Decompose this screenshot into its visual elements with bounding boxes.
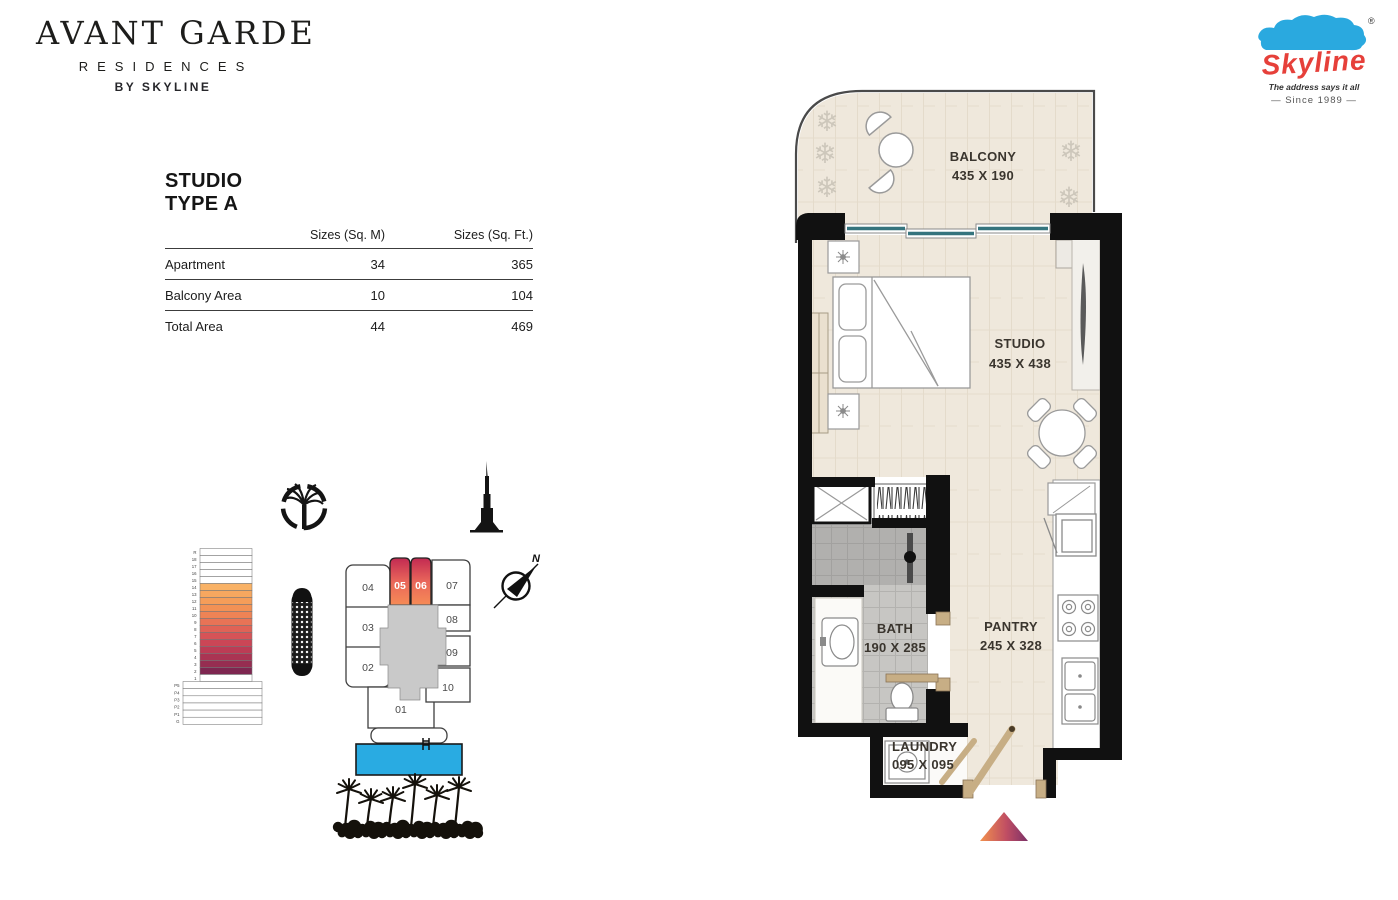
room-dims-studio: 435 X 438 (989, 356, 1051, 371)
svg-text:5: 5 (194, 648, 197, 653)
svg-text:P2: P2 (174, 705, 180, 710)
unit-03: 03 (362, 622, 374, 634)
skyline-name: Skyline (1251, 44, 1377, 82)
room-label-studio: STUDIO (995, 336, 1046, 351)
table-row: Apartment 34 365 (165, 248, 533, 279)
svg-text:8: 8 (194, 627, 197, 632)
table-row: Balcony Area 10 104 (165, 279, 533, 310)
svg-text:14: 14 (192, 585, 197, 590)
room-dims-balcony: 435 X 190 (952, 168, 1014, 183)
svg-text:R: R (193, 550, 196, 555)
unit-05-highlighted: 05 (394, 580, 406, 592)
unit-10: 10 (442, 682, 454, 694)
room-dims-laundry: 095 X 095 (892, 757, 954, 772)
bath-area: BATH 190 X 285 (812, 525, 928, 723)
svg-text:2: 2 (194, 669, 197, 674)
stove-icon (1058, 595, 1098, 641)
svg-text:18: 18 (192, 557, 197, 562)
svg-text:P3: P3 (174, 698, 180, 703)
skyline-logo: ® Skyline The address says it all — Sinc… (1252, 10, 1376, 106)
tower-icon (292, 588, 312, 676)
svg-text:P5: P5 (174, 683, 180, 688)
svg-text:1: 1 (194, 676, 197, 681)
col-header-sqft: Sizes (Sq. Ft.) (385, 228, 533, 242)
row-sqft: 365 (385, 257, 533, 272)
unit-08: 08 (446, 614, 458, 626)
unit-title: STUDIO TYPE A (165, 170, 242, 216)
page: AVANT GARDE RESIDENCES BY SKYLINE ® Skyl… (0, 0, 1398, 900)
palm-trees (333, 774, 483, 839)
compass-icon: N (494, 553, 541, 608)
skyline-since: — Since 1989 — (1252, 95, 1376, 106)
svg-text:12: 12 (192, 599, 197, 604)
unit-type: TYPE A (165, 193, 242, 216)
table-header-row: Sizes (Sq. M) Sizes (Sq. Ft.) (165, 222, 533, 248)
north-label: N (532, 553, 541, 565)
palm-jumeirah-icon (276, 479, 332, 535)
row-label: Apartment (165, 257, 293, 272)
tv-unit (1072, 232, 1100, 390)
entrance-marker (980, 812, 1028, 841)
svg-text:15: 15 (192, 578, 197, 583)
svg-text:P1: P1 (174, 712, 180, 717)
area-table: Sizes (Sq. M) Sizes (Sq. Ft.) Apartment … (165, 222, 533, 341)
location-key-cluster: N R181716151413121110987654321P5P4P3P2P1… (160, 450, 550, 850)
unit-06-highlighted: 06 (415, 580, 427, 592)
col-header-sqm: Sizes (Sq. M) (293, 228, 385, 242)
key-plan: 01 02 03 04 05 06 07 08 09 10 (346, 558, 470, 743)
room-label-pantry: PANTRY (984, 619, 1038, 634)
bed (833, 277, 970, 388)
burj-khalifa-icon (470, 461, 503, 533)
plant-icon: ❄ (1059, 136, 1082, 167)
svg-text:13: 13 (192, 592, 197, 597)
brand-name: AVANT GARDE (36, 14, 290, 52)
shelf (1056, 240, 1074, 268)
room-dims-bath: 190 X 285 (864, 640, 926, 655)
row-sqm: 10 (293, 288, 385, 303)
skyline-tagline: The address says it all (1252, 82, 1376, 92)
plant-icon: ❄ (813, 138, 836, 169)
table-row: Total Area 44 469 (165, 310, 533, 341)
svg-text:16: 16 (192, 571, 197, 576)
svg-text:3: 3 (194, 662, 197, 667)
svg-text:7: 7 (194, 634, 197, 639)
room-label-bath: BATH (877, 621, 913, 636)
brand-byline: BY SKYLINE (36, 80, 290, 94)
washbasin-icon (820, 618, 858, 666)
registered-mark: ® (1368, 16, 1375, 26)
floor-plan: ❄ ❄ ❄ ❄ ❄ BALCONY 435 X 190 (770, 75, 1190, 865)
room-dims-pantry: 245 X 328 (980, 638, 1042, 653)
svg-text:10: 10 (192, 613, 197, 618)
room-label-balcony: BALCONY (950, 149, 1016, 164)
unit-02: 02 (362, 662, 374, 674)
pillow (839, 336, 866, 382)
svg-text:G: G (176, 719, 180, 724)
floor-stack: R181716151413121110987654321P5P4P3P2P1G (174, 549, 262, 725)
svg-text:6: 6 (194, 641, 197, 646)
brand-residences: RESIDENCES (36, 59, 290, 74)
unit-09: 09 (446, 647, 458, 659)
row-sqm: 44 (293, 319, 385, 334)
svg-text:11: 11 (192, 606, 197, 611)
plant-icon: ❄ (815, 172, 838, 203)
row-sqft: 104 (385, 288, 533, 303)
plant-icon: ❄ (1057, 182, 1080, 213)
plant-icon: ❄ (815, 106, 838, 137)
sink-icon (1062, 658, 1098, 724)
row-sqm: 34 (293, 257, 385, 272)
brand-logo: AVANT GARDE RESIDENCES BY SKYLINE (36, 14, 290, 94)
row-sqft: 469 (385, 319, 533, 334)
unit-07: 07 (446, 580, 458, 592)
bath-door-leaf (886, 674, 938, 682)
row-label: Balcony Area (165, 288, 293, 303)
row-label: Total Area (165, 319, 293, 334)
svg-text:4: 4 (194, 655, 197, 660)
pool (356, 738, 462, 775)
pillow (839, 284, 866, 330)
svg-text:17: 17 (192, 564, 197, 569)
unit-01: 01 (395, 704, 407, 716)
svg-text:9: 9 (194, 620, 197, 625)
shower-head-icon (904, 551, 916, 563)
room-label-laundry: LAUNDRY (892, 739, 957, 754)
unit-name: STUDIO (165, 170, 242, 193)
svg-text:P4: P4 (174, 690, 180, 695)
unit-04: 04 (362, 582, 374, 594)
